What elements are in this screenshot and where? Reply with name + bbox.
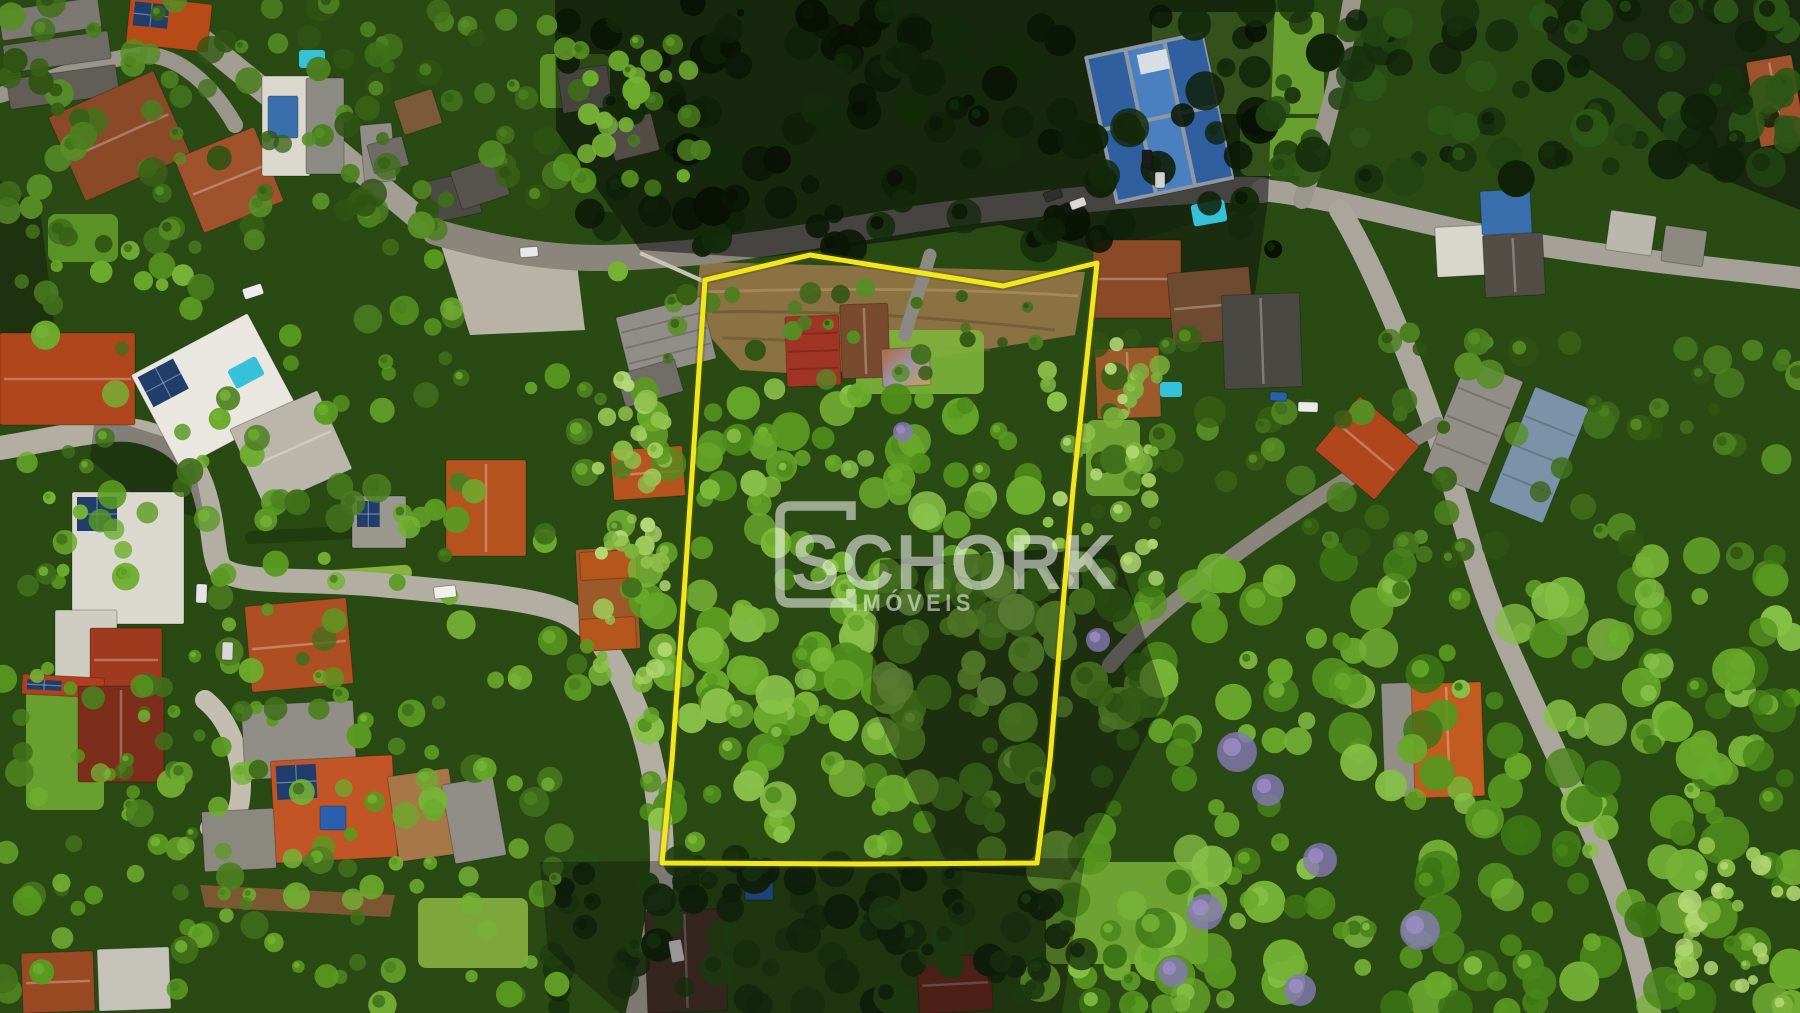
aerial-scene: SCHORK IMÓVEIS (0, 0, 1800, 1013)
watermark-logo: SCHORK IMÓVEIS (780, 506, 1118, 617)
watermark-subtitle-text: IMÓVEIS (852, 589, 975, 617)
aerial-photo-listing: SCHORK IMÓVEIS (0, 0, 1800, 1013)
